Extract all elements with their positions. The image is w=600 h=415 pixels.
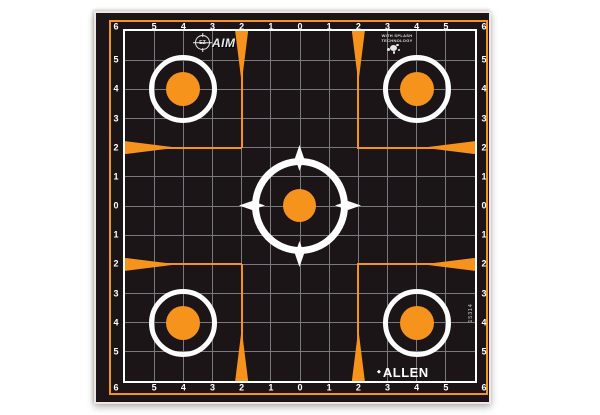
edge-number: 1 — [113, 231, 118, 240]
edge-number: 2 — [481, 260, 486, 269]
edge-number: 5 — [443, 23, 448, 32]
edge-number: 0 — [297, 384, 302, 393]
corner-bull-dot — [400, 72, 434, 106]
edge-number: 1 — [268, 23, 273, 32]
edge-number: 3 — [481, 114, 486, 123]
edge-number: 3 — [385, 23, 390, 32]
edge-number: 5 — [152, 384, 157, 393]
center-bullseye-dot — [283, 189, 316, 222]
edge-number: 3 — [385, 384, 390, 393]
edge-number: 3 — [210, 23, 215, 32]
edge-number: 1 — [113, 172, 118, 181]
edge-number: 5 — [113, 347, 118, 356]
edge-number: 1 — [268, 384, 273, 393]
target-sheet: EZ AIM WITH SPLASH TECHNOLOGY ◆ AL — [94, 11, 491, 404]
edge-number: 3 — [113, 289, 118, 298]
edge-number: 2 — [113, 260, 118, 269]
edge-number: 3 — [113, 114, 118, 123]
splash-line2: TECHNOLOGY — [373, 38, 421, 43]
crosshair-icon: EZ — [195, 35, 210, 50]
edge-number: 5 — [481, 56, 486, 65]
splash-technology-logo: WITH SPLASH TECHNOLOGY — [373, 33, 421, 54]
edge-number: 5 — [152, 23, 157, 32]
edge-number: 4 — [481, 318, 486, 327]
edge-number: 6 — [481, 384, 486, 393]
edge-number: 2 — [113, 143, 118, 152]
edge-number: 4 — [181, 384, 186, 393]
edge-number: 3 — [210, 384, 215, 393]
edge-number: 5 — [481, 347, 486, 356]
edge-number: 0 — [297, 23, 302, 32]
edge-number: 5 — [443, 384, 448, 393]
ezaim-logo: EZ AIM — [195, 35, 236, 50]
corner-bull-dot — [166, 306, 200, 340]
edge-number: 1 — [481, 231, 486, 240]
edge-number: 4 — [481, 85, 486, 94]
edge-number: 1 — [481, 172, 486, 181]
sku-label: 15314 — [465, 296, 476, 330]
allen-brand-logo: ◆ ALLEN — [377, 365, 429, 380]
edge-number: 6 — [113, 23, 118, 32]
splatter-icon — [387, 44, 400, 54]
edge-number: 2 — [481, 143, 486, 152]
edge-number: 3 — [481, 289, 486, 298]
edge-number: 2 — [356, 23, 361, 32]
edge-number: 1 — [327, 23, 332, 32]
product-image: EZ AIM WITH SPLASH TECHNOLOGY ◆ AL — [0, 0, 600, 415]
ezaim-logo-text: AIM — [212, 36, 236, 50]
ezaim-logo-prefix: EZ — [197, 37, 208, 48]
allen-brand-name: ALLEN — [383, 365, 429, 380]
edge-number: 0 — [481, 202, 486, 211]
edge-number: 5 — [113, 56, 118, 65]
edge-number: 4 — [414, 384, 419, 393]
target-black-field: EZ AIM WITH SPLASH TECHNOLOGY ◆ AL — [96, 13, 489, 402]
edge-number: 6 — [481, 23, 486, 32]
edge-number: 1 — [327, 384, 332, 393]
edge-number: 2 — [239, 384, 244, 393]
edge-number: 2 — [239, 23, 244, 32]
edge-number: 4 — [113, 85, 118, 94]
edge-number: 2 — [356, 384, 361, 393]
edge-number: 6 — [113, 384, 118, 393]
edge-number: 4 — [414, 23, 419, 32]
edge-number: 4 — [181, 23, 186, 32]
edge-number: 4 — [113, 318, 118, 327]
allen-brand-mark-icon: ◆ — [377, 370, 381, 375]
corner-bull-dot — [400, 306, 434, 340]
edge-number: 0 — [113, 202, 118, 211]
